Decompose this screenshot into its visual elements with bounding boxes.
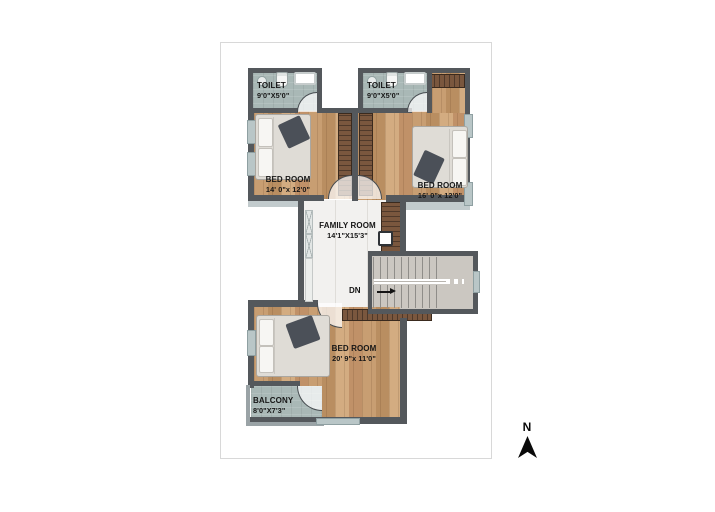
bed-upper-right	[412, 126, 468, 188]
closet-top-right	[429, 74, 465, 88]
stair-treads-lower	[373, 285, 443, 308]
wall	[368, 256, 372, 309]
wall	[400, 195, 406, 256]
wall	[427, 68, 470, 73]
room-dims: 9'0"X5'0"	[257, 91, 289, 100]
stair-treads-upper	[373, 257, 443, 279]
sink-fixture	[404, 72, 426, 85]
blanket	[413, 150, 445, 185]
wall	[358, 108, 412, 113]
sink-fixture	[294, 72, 316, 85]
wall	[248, 68, 253, 113]
room-label-bedroom-lower: BED ROOM 20' 9"x 11'0"	[315, 344, 393, 364]
pillow	[258, 118, 273, 147]
wall	[358, 68, 363, 113]
stair-railing	[374, 279, 446, 284]
shelf-unit	[305, 258, 313, 302]
room-dims: 14' 0"x 12'0"	[247, 185, 329, 194]
room-label-balcony: BALCONY 8'0"X7'3"	[253, 396, 293, 416]
wall	[368, 251, 478, 256]
room-dims: 9'0"X5'0"	[367, 91, 399, 100]
window	[247, 330, 256, 356]
room-dims: 8'0"X7'3"	[253, 406, 293, 415]
wall	[248, 108, 298, 113]
wall	[427, 68, 432, 113]
room-label-toilet-left: TOILET 9'0"X5'0"	[257, 81, 289, 101]
exterior-band	[248, 201, 304, 207]
wall	[298, 195, 304, 307]
room-label-toilet-right: TOILET 9'0"X5'0"	[367, 81, 399, 101]
dn-arrow-head-icon	[390, 288, 396, 294]
room-dims: 20' 9"x 11'0"	[315, 354, 393, 363]
balcony-railing	[246, 385, 250, 426]
pillow	[259, 319, 274, 346]
north-arrow-icon	[518, 436, 537, 458]
room-name: BED ROOM	[400, 181, 480, 191]
blanket	[278, 115, 311, 149]
wall	[368, 309, 478, 314]
wall	[248, 381, 300, 386]
room-name: BED ROOM	[247, 175, 329, 185]
north-label: N	[517, 420, 537, 434]
room-dims: 14'1"X15'3"	[300, 231, 395, 240]
floor-plan-canvas: DN TOILET 9'0"X5'0" TOILET 9'0"X5'0" BED…	[0, 0, 715, 512]
exterior-band	[406, 202, 470, 210]
room-dims: 16' 0"x 12'0"	[400, 191, 480, 200]
duvet-fold	[273, 117, 274, 177]
pillow	[259, 346, 274, 373]
duvet-fold	[274, 318, 275, 374]
room-label-bedroom-upper-left: BED ROOM 14' 0"x 12'0"	[247, 175, 329, 195]
room-name: FAMILY ROOM	[300, 221, 395, 231]
pillow	[452, 130, 467, 158]
window	[473, 271, 480, 293]
room-name: TOILET	[367, 81, 399, 91]
stair-railing-dashed	[446, 279, 464, 284]
room-label-bedroom-upper-right: BED ROOM 16' 0"x 12'0"	[400, 181, 480, 201]
wall	[400, 318, 407, 424]
room-name: BED ROOM	[315, 344, 393, 354]
balcony-railing	[246, 422, 324, 426]
room-label-family-room: FAMILY ROOM 14'1"X15'3"	[300, 221, 395, 241]
wall	[317, 68, 322, 113]
bed-upper-left	[255, 114, 311, 180]
window	[316, 418, 360, 425]
duvet-fold	[449, 129, 450, 185]
room-name: BALCONY	[253, 396, 293, 406]
pillow	[258, 148, 273, 177]
stairs-dn-label: DN	[349, 286, 361, 295]
dn-arrow-line	[377, 291, 390, 293]
room-name: TOILET	[257, 81, 289, 91]
